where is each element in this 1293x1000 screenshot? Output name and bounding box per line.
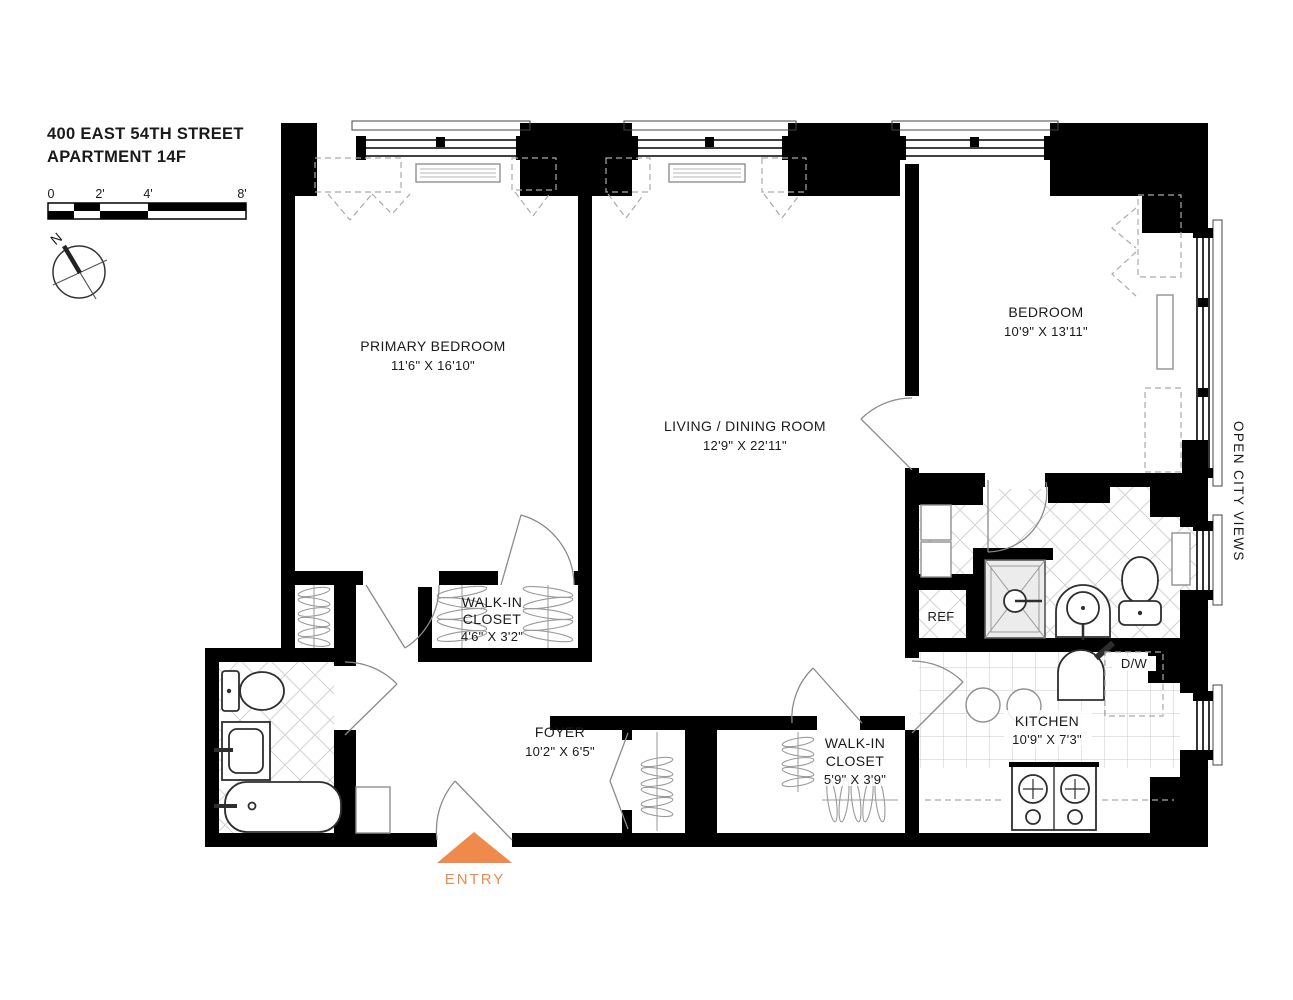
scale-tick-4ft: 4' bbox=[143, 187, 152, 201]
scale-tick-0: 0 bbox=[48, 187, 55, 201]
toilet bbox=[222, 671, 284, 711]
toilet bbox=[1119, 557, 1161, 625]
compass-north-label: N bbox=[47, 229, 65, 248]
room-walk-in-closet-1-label: WALK-IN CLOSET 4'6" X 3'2" bbox=[461, 594, 523, 644]
compass-icon: N bbox=[47, 229, 107, 299]
radiator bbox=[669, 164, 745, 182]
bedroom-name: BEDROOM bbox=[1008, 304, 1083, 320]
room-kitchen-label: KITCHEN 10'9" X 7'3" bbox=[1004, 710, 1092, 747]
plan-title-line2: APARTMENT 14F bbox=[47, 148, 186, 166]
radiator bbox=[1157, 295, 1173, 369]
kitchen-dims: 10'9" X 7'3" bbox=[1012, 732, 1082, 747]
scale-tick-8ft: 8' bbox=[237, 187, 246, 201]
drape bbox=[608, 194, 644, 218]
kitchen-name: KITCHEN bbox=[1015, 713, 1079, 729]
curtain-box bbox=[1145, 388, 1181, 472]
scale-tick-2ft: 2' bbox=[95, 187, 104, 201]
refrigerator-label: REF bbox=[928, 609, 955, 624]
bedroom-door bbox=[861, 398, 912, 470]
walk-in-closet-2-dims: 5'9" X 3'9" bbox=[824, 772, 886, 787]
drape bbox=[1112, 252, 1136, 296]
floor-plan-page: PRIMARY BEDROOM 11'6" X 16'10" LIVING / … bbox=[0, 0, 1293, 1000]
room-bedroom-label: BEDROOM 10'9" X 13'11" bbox=[1004, 304, 1088, 339]
drape bbox=[1112, 208, 1136, 248]
floor-plan-drawing: PRIMARY BEDROOM 11'6" X 16'10" LIVING / … bbox=[0, 0, 1293, 1000]
living-dining-name: LIVING / DINING ROOM bbox=[664, 418, 826, 434]
room-walk-in-closet-2-label: WALK-IN CLOSET 5'9" X 3'9" bbox=[815, 734, 895, 787]
bathtub bbox=[214, 782, 341, 832]
primary-bedroom-dims: 11'6" X 16'10" bbox=[391, 358, 475, 373]
shelf-unit bbox=[921, 505, 951, 540]
bathroom-ledge bbox=[1172, 533, 1190, 585]
window-bedroom-top bbox=[892, 121, 1058, 164]
drape bbox=[764, 194, 800, 218]
room-primary-bedroom-label: PRIMARY BEDROOM 11'6" X 16'10" bbox=[360, 338, 506, 373]
walk-in-closet-1-name-line1: WALK-IN bbox=[462, 594, 523, 610]
scale-bar: 0 2' 4' 8' bbox=[48, 187, 247, 219]
vanity-sink bbox=[214, 722, 270, 780]
open-city-views-label: OPEN CITY VIEWS bbox=[1231, 421, 1246, 562]
drape bbox=[328, 194, 372, 220]
radiator bbox=[416, 164, 500, 182]
dishwasher-label-group: D/W bbox=[1112, 656, 1156, 671]
foyer-dims: 10'2" X 6'5" bbox=[525, 744, 595, 759]
walk-in-closet-2-name-line2: CLOSET bbox=[826, 753, 884, 769]
stove bbox=[1009, 762, 1099, 830]
living-dining-dims: 12'9" X 22'11" bbox=[703, 438, 787, 453]
burner-icon bbox=[1068, 810, 1082, 824]
bedroom-dims: 10'9" X 13'11" bbox=[1004, 324, 1088, 339]
plan-title-line1: 400 EAST 54TH STREET bbox=[47, 125, 244, 143]
walk-in-closet-1-dims: 4'6" X 3'2" bbox=[461, 629, 523, 644]
walk-in-closet-1-name-line2: CLOSET bbox=[463, 611, 521, 627]
pedestal-sink bbox=[1056, 585, 1110, 640]
foyer-shaft bbox=[356, 787, 390, 833]
shower-stall bbox=[985, 560, 1045, 638]
drape bbox=[372, 194, 410, 214]
entry-label: ENTRY bbox=[445, 871, 506, 888]
window-kitchen bbox=[1193, 685, 1222, 765]
foyer-name: FOYER bbox=[535, 724, 585, 740]
burner-icon bbox=[1026, 810, 1040, 824]
primary-bedroom-name: PRIMARY BEDROOM bbox=[360, 338, 506, 354]
dishwasher-label: D/W bbox=[1121, 656, 1148, 671]
room-foyer-label: FOYER 10'2" X 6'5" bbox=[525, 724, 595, 759]
window-bathroom-2 bbox=[1193, 515, 1222, 605]
room-living-dining-label: LIVING / DINING ROOM 12'9" X 22'11" bbox=[664, 418, 826, 453]
shelf-unit bbox=[921, 542, 951, 577]
round-sink bbox=[966, 688, 1000, 722]
walk-in-closet-2-name-line1: WALK-IN bbox=[825, 735, 886, 751]
